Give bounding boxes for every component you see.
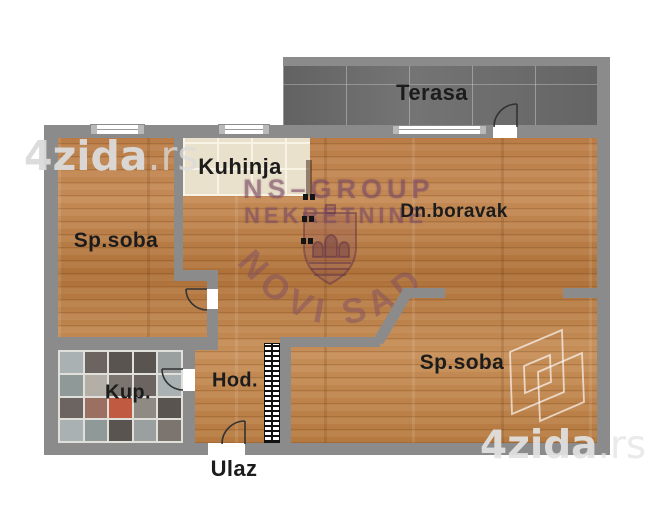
label-bathroom: Kup.	[105, 382, 151, 405]
door-arc-terrace	[494, 104, 517, 127]
label-bedroom-left: Sp.soba	[74, 229, 158, 253]
label-living-room: Dn.boravak	[400, 201, 507, 223]
watermark-brand-main: 4zida	[480, 423, 597, 468]
door-arc-entrance	[222, 421, 245, 444]
door-arc-bathroom	[162, 369, 183, 390]
watermark-brand-main: 4zida	[24, 132, 147, 180]
kitchen-edge-mark	[306, 160, 312, 196]
watermark-brand-suffix: .rs	[597, 423, 646, 468]
watermark-brand-suffix: .rs	[147, 132, 198, 180]
watermark-top-left: 4zida.rs	[24, 136, 199, 177]
watermark-bottom-right: 4zida.rs	[480, 426, 646, 465]
label-entrance: Ulaz	[211, 456, 258, 482]
dash-markers	[301, 194, 315, 244]
label-kitchen: Kuhinja	[198, 154, 281, 180]
label-bedroom-right: Sp.soba	[420, 351, 504, 375]
label-terrace: Terasa	[396, 80, 468, 106]
label-hallway: Hod.	[212, 370, 258, 393]
door-arc-bedroom-left	[186, 289, 207, 310]
wall-diagonal	[378, 293, 407, 342]
brand-cube-logo	[510, 330, 584, 421]
floorplan-canvas: NOVI SAD NS–GROUP NEKRETNINE	[0, 0, 653, 506]
